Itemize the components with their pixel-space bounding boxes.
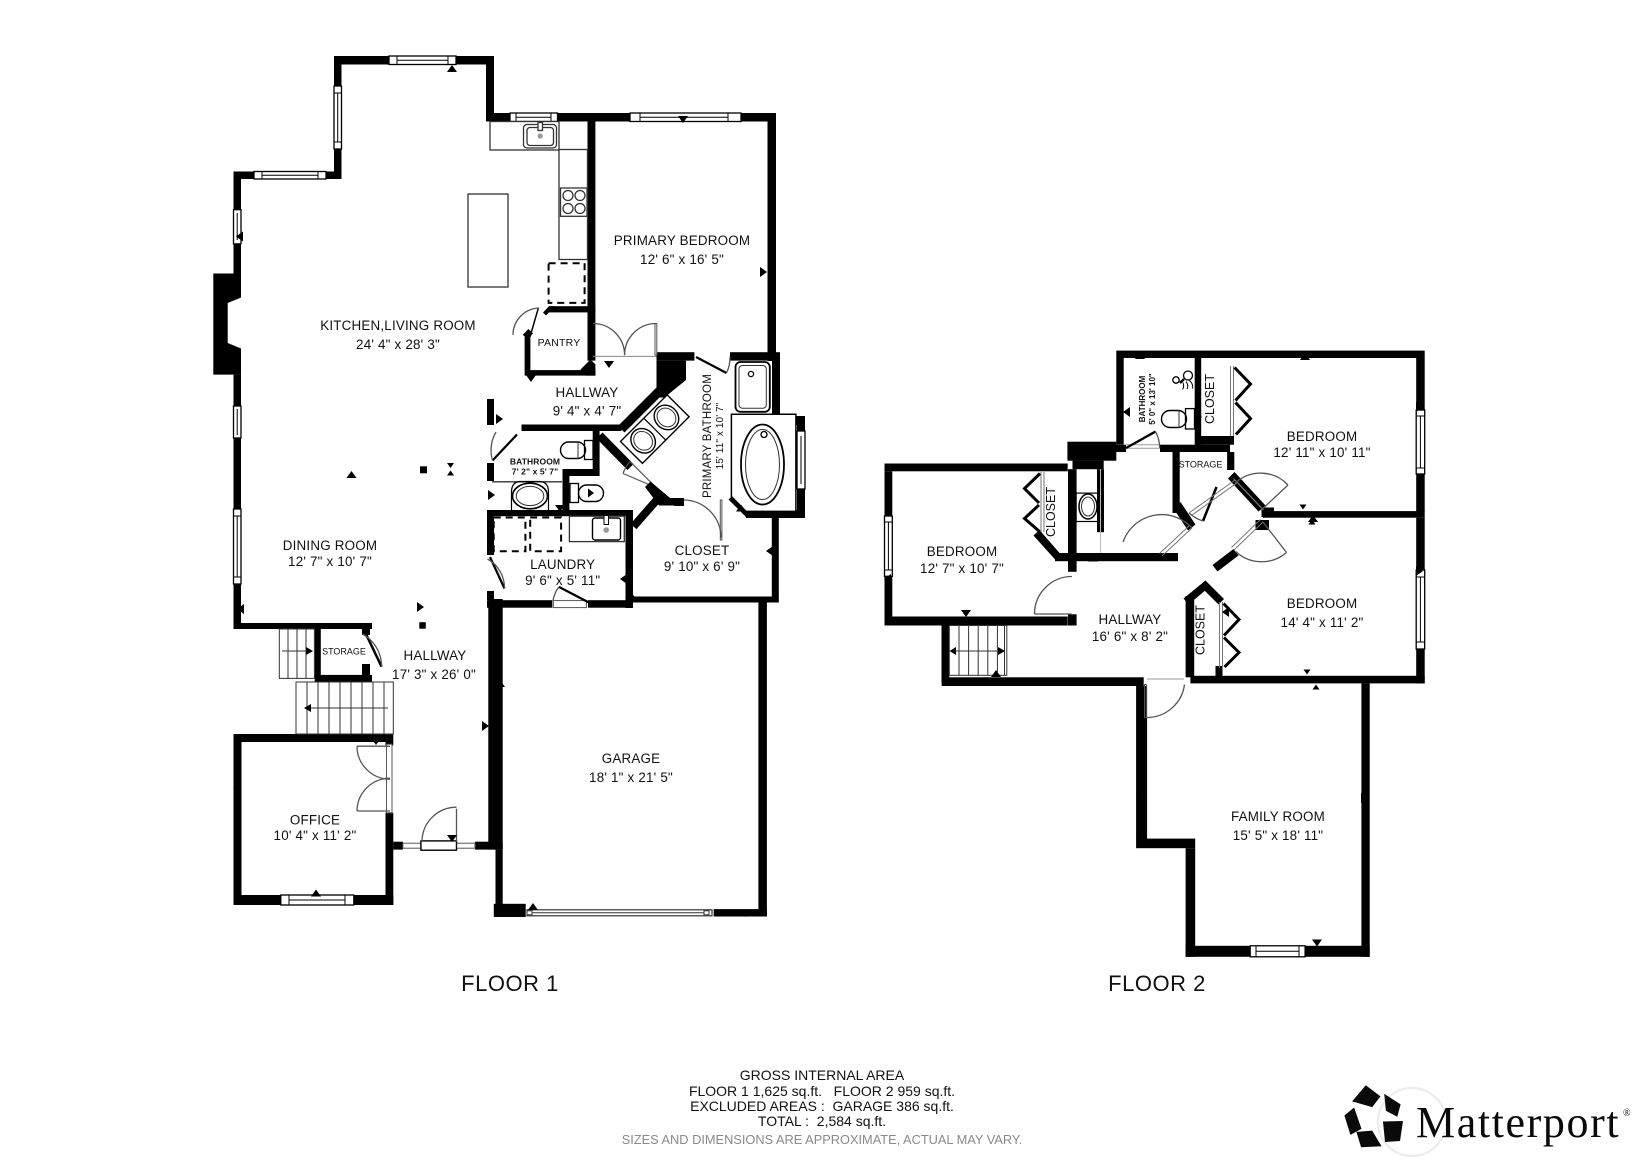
svg-text:STORAGE: STORAGE	[1179, 460, 1223, 470]
svg-text:17' 3" x 26' 0": 17' 3" x 26' 0"	[392, 667, 476, 682]
svg-text:LAUNDRY: LAUNDRY	[530, 557, 595, 572]
svg-text:SIZES AND DIMENSIONS ARE APPRO: SIZES AND DIMENSIONS ARE APPROXIMATE, AC…	[622, 1132, 1023, 1147]
svg-text:HALLWAY: HALLWAY	[556, 385, 619, 400]
svg-text:9' 6" x 5' 11": 9' 6" x 5' 11"	[525, 573, 600, 588]
svg-text:CLOSET: CLOSET	[1194, 605, 1208, 655]
svg-text:TOTAL : 2,584 sq.ft.: TOTAL : 2,584 sq.ft.	[758, 1113, 886, 1129]
svg-text:24' 4" x 28' 3": 24' 4" x 28' 3"	[356, 337, 440, 352]
svg-text:HALLWAY: HALLWAY	[404, 648, 467, 663]
svg-text:12' 7" x 10' 7": 12' 7" x 10' 7"	[288, 554, 372, 569]
svg-text:14' 4" x 11' 2": 14' 4" x 11' 2"	[1281, 615, 1364, 630]
svg-text:18' 1" x 21' 5": 18' 1" x 21' 5"	[589, 770, 673, 785]
svg-text:CLOSET: CLOSET	[675, 543, 730, 558]
svg-text:FLOOR 2: FLOOR 2	[1108, 971, 1206, 996]
svg-text:PRIMARY BATHROOM: PRIMARY BATHROOM	[702, 374, 714, 498]
svg-text:5' 0" x 13' 10": 5' 0" x 13' 10"	[1148, 373, 1157, 425]
svg-text:BATHROOM: BATHROOM	[1138, 375, 1147, 422]
svg-text:12' 11" x 10' 11": 12' 11" x 10' 11"	[1273, 445, 1370, 460]
svg-text:FLOOR 1: FLOOR 1	[461, 971, 559, 996]
svg-text:PANTRY: PANTRY	[538, 337, 581, 349]
svg-text:OFFICE: OFFICE	[290, 813, 340, 828]
svg-text:STORAGE: STORAGE	[322, 647, 366, 657]
svg-text:15' 5" x 18' 11": 15' 5" x 18' 11"	[1233, 828, 1324, 843]
svg-text:BEDROOM: BEDROOM	[1287, 596, 1358, 611]
svg-text:12' 6" x 16' 5": 12' 6" x 16' 5"	[640, 252, 724, 267]
svg-text:DINING ROOM: DINING ROOM	[283, 538, 377, 553]
svg-text:PRIMARY BEDROOM: PRIMARY BEDROOM	[614, 233, 750, 248]
svg-text:16' 6" x 8' 2": 16' 6" x 8' 2"	[1092, 629, 1168, 644]
svg-text:GARAGE: GARAGE	[602, 751, 661, 766]
svg-text:9' 4" x 4' 7": 9' 4" x 4' 7"	[553, 404, 622, 419]
svg-text:CLOSET: CLOSET	[1044, 487, 1058, 537]
svg-text:Matterport: Matterport	[1416, 1098, 1620, 1147]
svg-text:12' 7" x 10' 7": 12' 7" x 10' 7"	[920, 561, 1004, 576]
svg-text:9' 10" x 6' 9": 9' 10" x 6' 9"	[664, 559, 740, 574]
svg-text:FAMILY ROOM: FAMILY ROOM	[1231, 809, 1325, 824]
svg-text:15' 11" x 10' 7": 15' 11" x 10' 7"	[715, 402, 726, 469]
svg-text:EXCLUDED AREAS : GARAGE 386 s: EXCLUDED AREAS : GARAGE 386 sq.ft.	[690, 1098, 954, 1114]
svg-text:®: ®	[1623, 1108, 1631, 1119]
svg-text:BEDROOM: BEDROOM	[1287, 429, 1358, 444]
svg-text:FLOOR 1 1,625 sq.ft. FLOOR 2: FLOOR 1 1,625 sq.ft. FLOOR 2 959 sq.ft.	[689, 1083, 955, 1099]
svg-text:HALLWAY: HALLWAY	[1099, 612, 1162, 627]
svg-text:GROSS INTERNAL AREA: GROSS INTERNAL AREA	[740, 1067, 905, 1083]
svg-text:7' 2" x 5' 7": 7' 2" x 5' 7"	[512, 467, 559, 477]
svg-text:BEDROOM: BEDROOM	[927, 544, 998, 559]
svg-text:10' 4" x 11' 2": 10' 4" x 11' 2"	[274, 828, 357, 843]
svg-text:BATHROOM: BATHROOM	[510, 457, 560, 467]
svg-text:CLOSET: CLOSET	[1203, 374, 1217, 424]
svg-text:KITCHEN,LIVING ROOM: KITCHEN,LIVING ROOM	[320, 318, 476, 333]
